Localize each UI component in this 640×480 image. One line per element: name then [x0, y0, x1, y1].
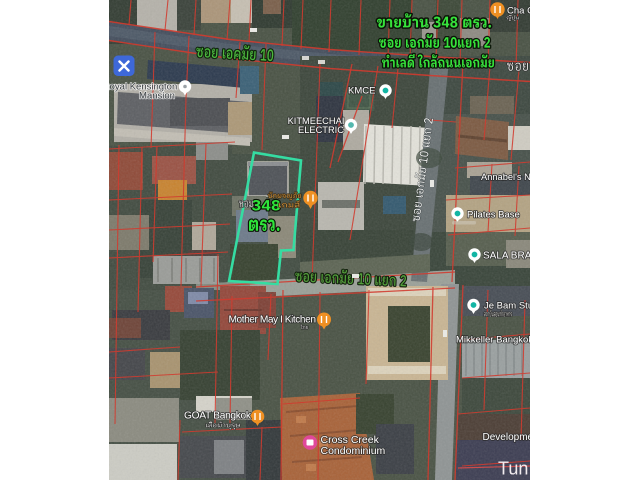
svg-text:Mansion: Mansion	[139, 90, 175, 101]
svg-text:KMCE: KMCE	[348, 86, 375, 97]
svg-text:GOAT Bangkok: GOAT Bangkok	[184, 411, 252, 422]
svg-text:Cross Creek: Cross Creek	[321, 434, 380, 446]
svg-text:Pilates Base: Pilates Base	[467, 210, 520, 221]
svg-text:Condominium: Condominium	[321, 445, 386, 457]
svg-text:Mother May I Kitchen: Mother May I Kitchen	[229, 315, 317, 326]
svg-text:Tun: Tun	[498, 459, 528, 479]
svg-text:ELECTRIC: ELECTRIC	[298, 125, 344, 135]
svg-text:Mikkeller Bangkok: Mikkeller Bangkok	[456, 335, 533, 346]
